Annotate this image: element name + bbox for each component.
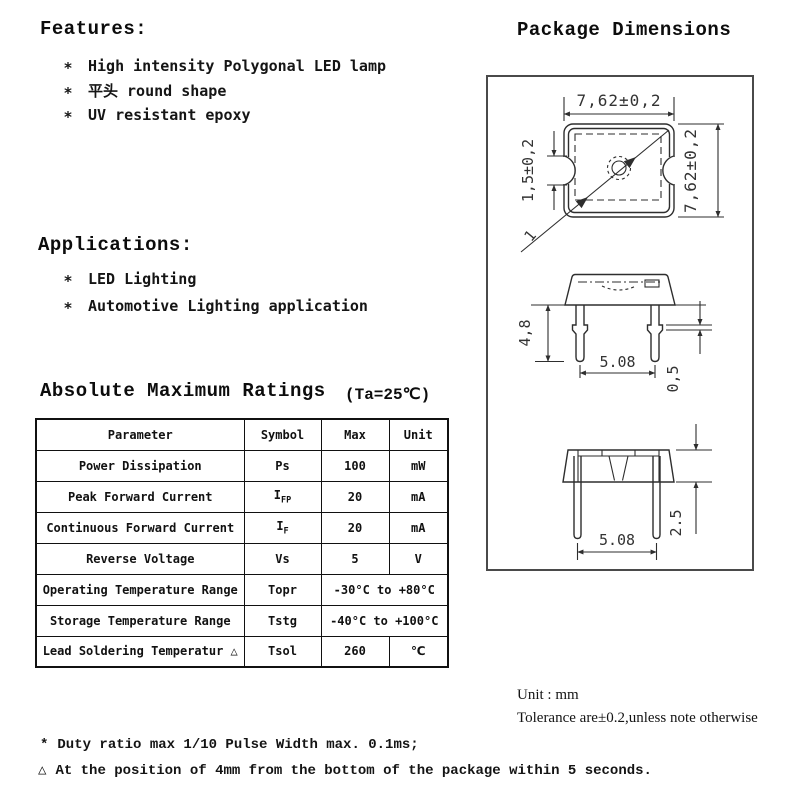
list-item: * Automotive Lighting application: [60, 293, 368, 320]
feature-text: UV resistant epoxy: [88, 103, 251, 128]
dim-top-width-label: 7,62±0,2: [576, 91, 661, 110]
cell-max: 20: [321, 512, 389, 543]
col-symbol: Symbol: [244, 419, 321, 450]
cell-unit: mW: [389, 450, 448, 481]
cell-max: 5: [321, 543, 389, 574]
lead-left: [573, 305, 588, 362]
cell-unit: V: [389, 543, 448, 574]
table-header-row: Parameter Symbol Max Unit: [36, 419, 448, 450]
cell-parameter: Storage Temperature Range: [36, 605, 244, 636]
application-text: Automotive Lighting application: [88, 293, 368, 320]
col-unit: Unit: [389, 419, 448, 450]
asterisk-bullet-icon: *: [60, 56, 76, 81]
list-item: * UV resistant epoxy: [60, 103, 386, 128]
table-row: Operating Temperature Range Topr -30°C t…: [36, 574, 448, 605]
cell-parameter: Power Dissipation: [36, 450, 244, 481]
ratings-condition: (Ta=25℃): [345, 384, 430, 404]
applications-title: Applications:: [38, 234, 193, 256]
datasheet-page: Features: * High intensity Polygonal LED…: [0, 0, 800, 805]
cell-symbol: Ps: [244, 450, 321, 481]
footnote: △ At the position of 4mm from the bottom…: [38, 762, 652, 779]
cell-parameter: Lead Soldering Temperatur △: [36, 636, 244, 667]
side-view: 4,8 5.08 0,5: [516, 275, 712, 393]
table-row: Peak Forward Current IFP 20 mA: [36, 481, 448, 512]
feature-text: 平头 round shape: [88, 79, 226, 104]
diag-mark-label: 1: [520, 227, 540, 245]
asterisk-bullet-icon: *: [60, 81, 76, 106]
cell-parameter: Reverse Voltage: [36, 543, 244, 574]
unit-note: Unit : mm: [517, 687, 579, 704]
footnote-text: Duty ratio max 1/10 Pulse Width max. 0.1…: [57, 737, 418, 753]
features-title: Features:: [40, 18, 147, 40]
col-max: Max: [321, 419, 389, 450]
symbol-sub: FP: [281, 495, 291, 505]
cell-symbol: Topr: [244, 574, 321, 605]
asterisk-bullet-icon: *: [60, 295, 76, 322]
table-row: Power Dissipation Ps 100 mW: [36, 450, 448, 481]
feature-text: High intensity Polygonal LED lamp: [88, 54, 386, 79]
dim-lead-pitch-label: 5.08: [599, 353, 635, 371]
table-row: Continuous Forward Current IF 20 mA: [36, 512, 448, 543]
front-view: 5.08 2.5: [563, 424, 712, 560]
footnote: * Duty ratio max 1/10 Pulse Width max. 0…: [40, 737, 419, 753]
triangle-bullet-icon: △: [38, 762, 46, 779]
asterisk-bullet-icon: *: [60, 105, 76, 130]
table-row: Lead Soldering Temperatur △ Tsol 260 ℃: [36, 636, 448, 667]
cell-symbol: Vs: [244, 543, 321, 574]
application-text: LED Lighting: [88, 266, 196, 293]
symbol-main: I: [274, 488, 281, 502]
cell-max: 260: [321, 636, 389, 667]
cell-symbol: Tsol: [244, 636, 321, 667]
tolerance-note: Tolerance are±0.2,unless note otherwise: [517, 710, 758, 727]
cell-unit: mA: [389, 481, 448, 512]
cell-parameter: Operating Temperature Range: [36, 574, 244, 605]
package-drawing: 1 7,62±0,2 7,62±0,2 1,5±0,2: [488, 77, 752, 569]
symbol-main: I: [276, 519, 283, 533]
dim-side-height-label: 7,62±0,2: [681, 128, 700, 213]
table-row: Reverse Voltage Vs 5 V: [36, 543, 448, 574]
dim-lead-length-label: 4,8: [516, 319, 534, 346]
symbol-sub: F: [284, 526, 289, 536]
dim-standoff-label: 0,5: [664, 365, 682, 392]
dim-notch-label: 1,5±0,2: [519, 139, 537, 202]
asterisk-bullet-icon: *: [60, 268, 76, 295]
top-view: 1 7,62±0,2 7,62±0,2 1,5±0,2: [519, 91, 724, 252]
cell-symbol: Tstg: [244, 605, 321, 636]
cell-symbol: IFP: [244, 481, 321, 512]
list-item: * LED Lighting: [60, 266, 368, 293]
dim-flange-label: 2.5: [667, 509, 685, 536]
ratings-table: Parameter Symbol Max Unit Power Dissipat…: [35, 418, 449, 668]
package-drawing-frame: 1 7,62±0,2 7,62±0,2 1,5±0,2: [486, 75, 754, 571]
polarity-diagonal: [521, 130, 669, 252]
list-item: * 平头 round shape: [60, 79, 386, 104]
cell-range: -40°C to +100°C: [321, 605, 448, 636]
cell-unit: ℃: [389, 636, 448, 667]
applications-list: * LED Lighting * Automotive Lighting app…: [60, 266, 368, 320]
cell-unit: mA: [389, 512, 448, 543]
features-list: * High intensity Polygonal LED lamp * 平头…: [60, 54, 386, 128]
dim-lead-pitch2-label: 5.08: [599, 531, 635, 549]
footnote-text: At the position of 4mm from the bottom o…: [55, 763, 652, 779]
lead-right: [648, 305, 663, 362]
col-parameter: Parameter: [36, 419, 244, 450]
cell-max: 100: [321, 450, 389, 481]
cell-range: -30°C to +80°C: [321, 574, 448, 605]
cell-max: 20: [321, 481, 389, 512]
cell-symbol: IF: [244, 512, 321, 543]
cell-parameter: Peak Forward Current: [36, 481, 244, 512]
cell-parameter: Continuous Forward Current: [36, 512, 244, 543]
list-item: * High intensity Polygonal LED lamp: [60, 54, 386, 79]
table-row: Storage Temperature Range Tstg -40°C to …: [36, 605, 448, 636]
asterisk-bullet-icon: *: [40, 737, 48, 753]
ratings-title: Absolute Maximum Ratings: [40, 380, 326, 402]
package-dimensions-title: Package Dimensions: [517, 19, 731, 41]
